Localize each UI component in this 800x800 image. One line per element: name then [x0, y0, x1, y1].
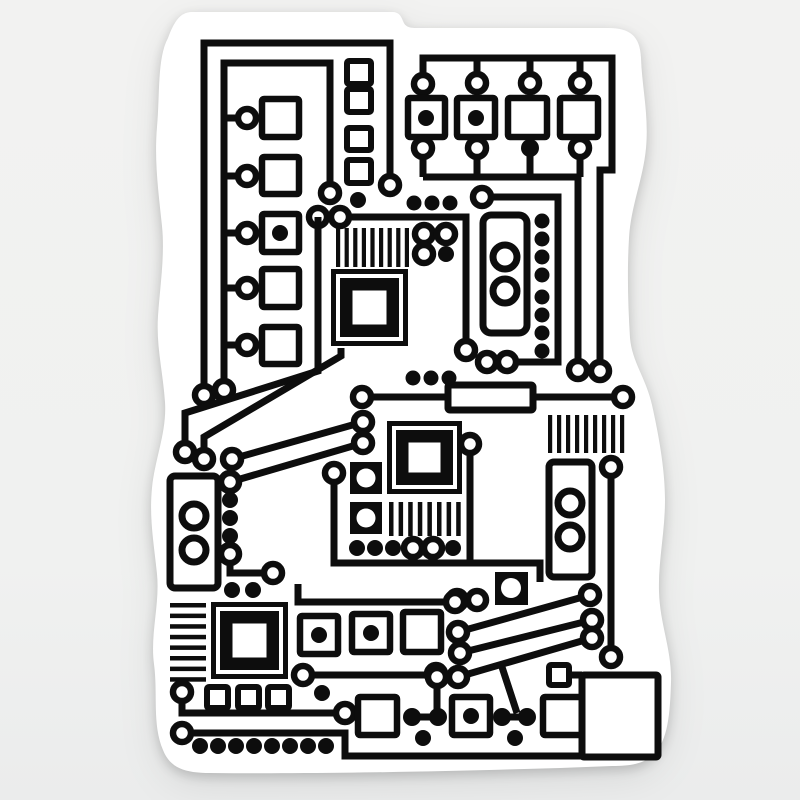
mid-dotcol-1 — [535, 214, 550, 229]
bl-mini-square-3 — [268, 687, 289, 708]
8-bar — [170, 624, 206, 629]
left-dotcol-end-pad — [264, 564, 282, 582]
8-bar — [170, 603, 206, 608]
tl-mini-square-2 — [347, 89, 371, 112]
left-dotcol-bot-pad — [221, 545, 239, 563]
right-component-hole-2 — [558, 525, 582, 549]
dumbbell-1-dot-right — [429, 708, 447, 726]
ic1-pad-a — [415, 225, 433, 243]
ic2-row-pad-1 — [404, 539, 422, 557]
tl-lead-pad-1 — [238, 109, 256, 127]
tr-top-pad-1 — [414, 75, 432, 93]
center-padrect-hole — [501, 578, 521, 598]
tl-lead-pad-5 — [238, 336, 256, 354]
ic1-pad-b — [437, 225, 455, 243]
resistor-body — [448, 385, 533, 410]
dumbbell-1-dot-below — [415, 730, 431, 746]
tl-square-3-dot — [272, 225, 288, 241]
tr-square-1-dot — [418, 110, 434, 126]
tr-via-pad-right — [591, 362, 609, 380]
resistor-dot-2 — [424, 371, 439, 386]
ic2-padrect-2-hole — [357, 509, 376, 528]
ic2-row-pad-2 — [424, 539, 442, 557]
bl-dotrow-7 — [300, 738, 316, 754]
br-diag-a-pad-right — [581, 586, 599, 604]
tl-square-4 — [262, 269, 299, 307]
tr-bot-dot-3 — [521, 139, 539, 157]
8-bar — [447, 502, 452, 536]
mid-dot-row-2 — [425, 196, 440, 211]
tl-square-2 — [262, 157, 299, 194]
resistor-pad-left — [353, 388, 371, 406]
tr-bot-pad-4 — [571, 139, 589, 157]
right-component-hole-1 — [558, 491, 582, 515]
9-bar — [362, 228, 366, 267]
bl-dotrow-8 — [318, 738, 334, 754]
bc-dot — [314, 685, 330, 701]
tr-via-pad-left — [569, 361, 587, 379]
8-bar — [418, 502, 423, 536]
ic1-wrap-pad-start — [331, 208, 349, 226]
mid-dotcol-8 — [535, 344, 550, 359]
mid-component-box — [483, 215, 527, 333]
8-bar — [437, 502, 442, 536]
8-bar — [170, 614, 206, 619]
tl-inner-end-pad-right — [321, 184, 339, 202]
bl-top-dot-1 — [224, 582, 240, 598]
9-bar — [584, 415, 588, 453]
resistor-pad-right — [614, 388, 632, 406]
tr-square-4 — [560, 98, 598, 137]
bl-top-dot-2 — [245, 582, 261, 598]
tl-lead-pad-4 — [238, 279, 256, 297]
left-component-box — [170, 476, 218, 588]
ic1-wrap-pad-end — [457, 341, 475, 359]
bl-mini-square-2 — [238, 687, 259, 708]
bl-dotrow-2 — [210, 738, 226, 754]
ic3-chip-hole — [233, 624, 267, 658]
mid-dotcol-4 — [535, 268, 550, 283]
left-component-hole-2 — [182, 538, 206, 562]
ic2-padrect-1-hole — [357, 469, 376, 488]
diag-3-pad-left — [223, 450, 241, 468]
mid-dot-row-1 — [407, 196, 422, 211]
ic2-row-dot-1 — [349, 540, 365, 556]
9-bar — [602, 415, 606, 453]
dumbbell-2-dot-below — [507, 730, 523, 746]
tr-top-pad-3 — [521, 74, 539, 92]
ic2-row-dot-3 — [385, 540, 401, 556]
tl-mini-square-1 — [347, 61, 371, 84]
dumbbell-1-dot-left — [403, 708, 421, 726]
mid-dot — [350, 192, 366, 208]
bc-square-1-dot — [311, 627, 327, 643]
8-bar — [170, 656, 206, 661]
bl-dotrow-5 — [264, 738, 280, 754]
br-diag-c-pad-left — [449, 668, 467, 686]
bc-trace-pad-left — [294, 666, 312, 684]
left-component-hole-1 — [182, 504, 206, 528]
right-component-box — [549, 462, 592, 577]
mid-dotcol-7 — [535, 326, 550, 341]
9-bar — [336, 228, 340, 267]
8-bar — [456, 502, 461, 536]
9-bar — [379, 228, 383, 267]
9-bar — [575, 415, 579, 453]
tr-top-pad-2 — [468, 74, 486, 92]
bl-trace-1-pad-start — [173, 683, 191, 701]
left-dotcol-1 — [222, 492, 238, 508]
bl-trace-1-pad-end — [336, 704, 354, 722]
center-long-trace-pad — [446, 593, 464, 611]
8-bar — [399, 502, 404, 536]
bottom-square-1 — [358, 697, 397, 735]
9-bar — [611, 415, 615, 453]
br-diag-side-pad — [428, 668, 446, 686]
tl-square-5 — [262, 327, 299, 364]
8-bar — [170, 677, 206, 682]
resistor-dot-3 — [442, 371, 457, 386]
center-pad-2 — [468, 591, 486, 609]
left-dotcol-2 — [222, 510, 238, 526]
mid-frame-pad-end — [498, 353, 516, 371]
tl-outer-end-pad-right — [381, 176, 399, 194]
left-dotcol-3 — [222, 528, 238, 544]
bc-square-2-dot — [363, 625, 379, 641]
sticker-scene — [0, 0, 800, 800]
9-bar — [388, 228, 392, 267]
dumbbell-2-dot-left — [493, 708, 511, 726]
bc-square-3 — [403, 612, 441, 652]
mid-dot-row-3 — [443, 196, 458, 211]
8-bar — [170, 645, 206, 650]
ic1-pad-c — [415, 245, 433, 263]
9-bar — [353, 228, 357, 267]
tl-mini-square-3 — [347, 128, 371, 150]
br-diag-c-pad-right — [583, 629, 601, 647]
ic2-chip-hole — [409, 443, 441, 473]
br-diag-a-pad-left — [449, 623, 467, 641]
bottom-square-2-dot — [463, 708, 479, 724]
9-bar — [548, 415, 552, 453]
circuit-board-sticker — [0, 0, 800, 800]
br-big-frame — [582, 675, 658, 757]
mid-frame-pad-start — [473, 188, 491, 206]
br-diag-b-pad-left — [451, 644, 469, 662]
diag-2-end-pad — [195, 450, 213, 468]
mid-dotcol-2 — [535, 232, 550, 247]
ic1-dot-d — [438, 246, 454, 262]
diag-1-end-pad — [176, 443, 194, 461]
ic2-row-dot-2 — [367, 540, 383, 556]
bl-dotrow-1 — [192, 738, 208, 754]
bl-trace-2-pad — [173, 724, 191, 742]
ic1-chip-hole — [353, 291, 387, 325]
left-dotcol-top-pad — [221, 473, 239, 491]
tl-lead-pad-3 — [238, 224, 256, 242]
mid-dotcol-5 — [535, 290, 550, 305]
8-bar — [170, 667, 206, 672]
bl-dotrow-6 — [282, 738, 298, 754]
mid-frame-pad-side — [478, 353, 496, 371]
9-bar — [566, 415, 570, 453]
diag-3-pad-right — [354, 413, 372, 431]
ic2-wrap-pad — [325, 464, 343, 482]
dumbbell-2-dot-right — [518, 708, 536, 726]
bl-dotrow-4 — [246, 738, 262, 754]
9-bar — [620, 415, 624, 453]
ic2-drop-pad — [461, 435, 479, 453]
tl-square-1 — [262, 99, 299, 137]
tr-top-pad-4 — [571, 74, 589, 92]
resistor-dot-1 — [406, 371, 421, 386]
9-bar — [593, 415, 597, 453]
8-bar — [389, 502, 394, 536]
br-mini-square — [549, 665, 569, 685]
9-bar — [557, 415, 561, 453]
mid-dotcol-6 — [535, 308, 550, 323]
mid-component-hole-1 — [493, 245, 517, 269]
8-bar — [427, 502, 432, 536]
ic2-row-dot-4 — [445, 540, 461, 556]
9-bar — [405, 228, 409, 267]
tr-bot-pad-2 — [468, 139, 486, 157]
8-bar — [408, 502, 413, 536]
bl-dotrow-3 — [228, 738, 244, 754]
tl-outer-end-pad-bottom — [195, 386, 213, 404]
8-bar — [170, 635, 206, 640]
diag-4-pad-right — [354, 434, 372, 452]
right-long-pad-bottom — [602, 648, 620, 666]
right-long-pad-top — [602, 458, 620, 476]
9-bar — [345, 228, 349, 267]
9-bar — [396, 228, 400, 267]
tl-mini-square-4 — [347, 160, 371, 183]
9-bar — [370, 228, 374, 267]
tr-bot-pad-1 — [414, 139, 432, 157]
bottom-square-3 — [543, 697, 582, 735]
mid-component-hole-2 — [493, 279, 517, 303]
bl-mini-square-1 — [207, 687, 228, 708]
tr-square-2-dot — [468, 110, 484, 126]
tl-lead-pad-2 — [238, 167, 256, 185]
mid-dotcol-3 — [535, 250, 550, 265]
tr-square-3 — [508, 98, 547, 137]
